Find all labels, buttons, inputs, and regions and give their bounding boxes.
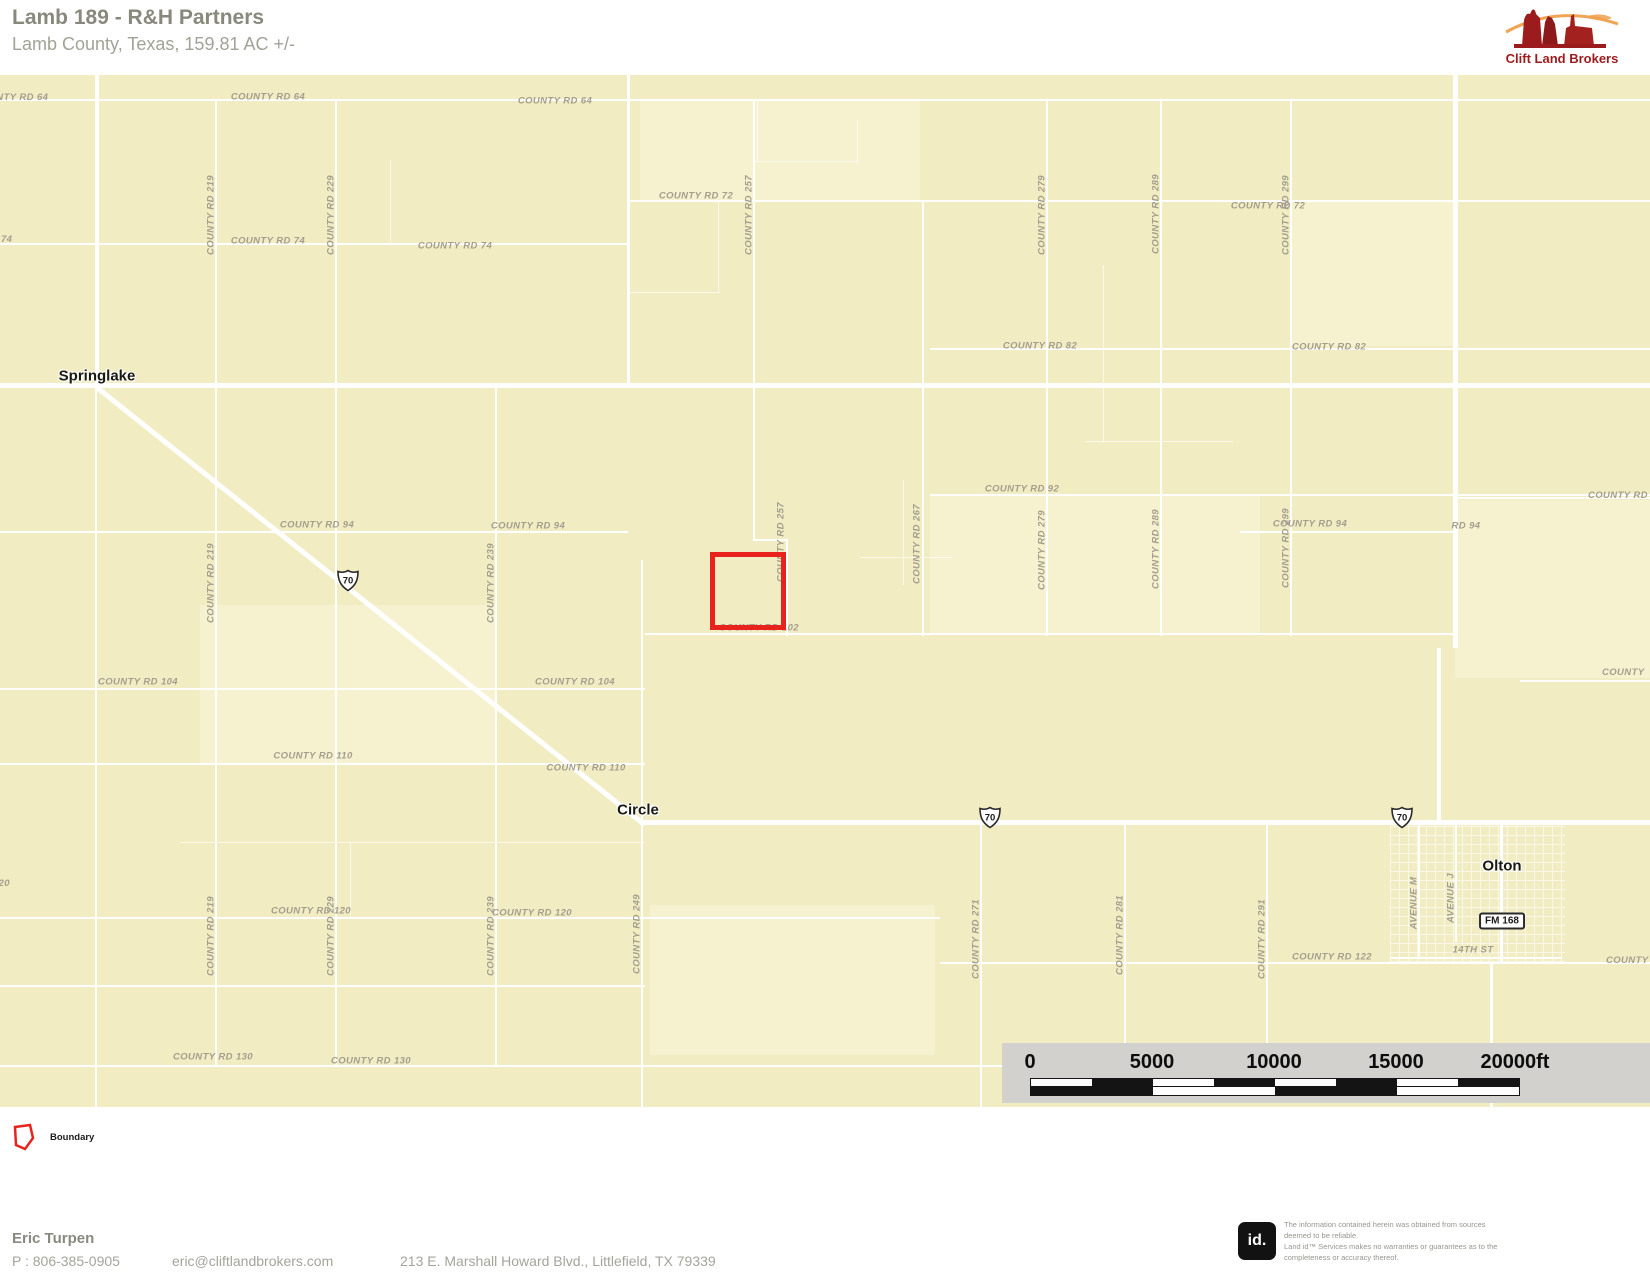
page-title: Lamb 189 - R&H Partners [12, 6, 264, 30]
road-label: COUNTY RD 72 [659, 191, 733, 202]
road-label: COUNTY RD 74 [0, 234, 12, 245]
terrain-patch [1290, 200, 1455, 346]
road-label: COUNTY RD 120 [0, 878, 10, 889]
minor-road-line [757, 99, 758, 161]
road-line [628, 200, 1650, 202]
scale-bar-segment [1153, 1087, 1275, 1095]
road-label: COUNTY RD 82 [1003, 341, 1077, 352]
agent-name: Eric Turpen [12, 1230, 94, 1247]
disclaimer-line: completeness or accuracy thereof. [1284, 1253, 1564, 1264]
road-label: COUNTY RD 279 [1037, 510, 1048, 590]
us-70-route-shield: 70 [1390, 806, 1414, 835]
town-label: Circle [617, 802, 659, 819]
minor-road-line [1103, 265, 1104, 443]
road-label: COUNTY RD 257 [744, 175, 755, 255]
terrain-patch [930, 495, 1260, 633]
road-label: COUNTY RD 130 [173, 1052, 253, 1063]
road-label: COUNTY RD 120 [271, 906, 351, 917]
land-id-logo: id. [1238, 1222, 1276, 1260]
road-line [95, 385, 97, 1107]
fm-168-route-shield: FM 168 [1479, 913, 1525, 930]
minor-road-line [390, 160, 391, 245]
road-label: COUNTY RD 249 [632, 894, 643, 974]
road-label: COUNTY RD 110 [546, 763, 625, 774]
brand-logo: Clift Land Brokers [1492, 2, 1632, 66]
road-line [1520, 680, 1650, 682]
road-label: COUNTY RD 267 [912, 504, 923, 584]
disclaimer-line: Land id™ Services makes no warranties or… [1284, 1242, 1564, 1253]
disclaimer-line: deemed to be reliable. [1284, 1231, 1564, 1242]
scale-bar-ruler [1030, 1086, 1520, 1096]
minor-road-line [755, 161, 857, 162]
road-label: COUNTY RD 74 [418, 241, 492, 252]
road-label: COUNTY RD 219 [206, 896, 217, 976]
road-label: COUNTY RD 229 [326, 896, 337, 976]
road-label: COUNTY RD 94 [280, 520, 354, 531]
legend-label: Boundary [50, 1132, 94, 1143]
road-line [95, 75, 99, 385]
svg-text:70: 70 [1397, 813, 1408, 824]
road-label: 14TH ST [1453, 945, 1494, 956]
map-canvas: COUNTY RD 64COUNTY RD 64COUNTY RD 64COUN… [0, 75, 1650, 1107]
us-70-route-shield: 70 [336, 569, 360, 598]
road-label: RD 94 [1452, 521, 1481, 532]
road-label: COUNTY RD 219 [206, 175, 217, 255]
road-label: COUNTY RD 64 [518, 96, 592, 107]
road-label: COUNTY RD 239 [486, 543, 497, 623]
road-label: COUNTY RD 104 [98, 677, 178, 688]
road-line [640, 820, 1650, 825]
road-label: COUNTY RD 122 [1292, 952, 1372, 963]
road-label: COUNTY RD 94 [491, 521, 565, 532]
minor-road-line [857, 120, 858, 165]
terrain-patch [200, 605, 495, 763]
property-boundary [710, 552, 786, 630]
road-label: COUNTY RD 130 [331, 1056, 411, 1067]
road-line [0, 1065, 1005, 1067]
minor-road-line [1085, 441, 1233, 442]
terrain-patch [640, 100, 920, 200]
boundary-legend-icon [10, 1122, 36, 1152]
road-label: COUNTY RD 82 [1292, 342, 1366, 353]
scale-bar-segment [1275, 1087, 1397, 1095]
road-line [753, 99, 755, 540]
road-label: COUNTY RD 239 [486, 896, 497, 976]
road-label: COUNTY RD 289 [1151, 174, 1162, 254]
scale-bar-segment [1031, 1087, 1153, 1095]
road-label: COUNTY [1606, 955, 1649, 966]
terrain-patch [1455, 500, 1650, 678]
road-label: COUNTY [1602, 667, 1645, 678]
scale-bar-label: 10000 [1246, 1051, 1302, 1074]
road-label: COUNTY RD 64 [0, 92, 48, 103]
brand-logo-text: Clift Land Brokers [1492, 51, 1632, 66]
road-label: COUNTY RD 104 [535, 677, 615, 688]
road-label: COUNTY RD 72 [1231, 201, 1305, 212]
road-label: AVENUE J [1446, 873, 1457, 923]
agent-phone: P : 806-385-0905 [12, 1253, 120, 1269]
road-label: COUNTY RD 74 [231, 236, 305, 247]
disclaimer-line: The information contained herein was obt… [1284, 1220, 1564, 1231]
road-line [1453, 75, 1458, 648]
road-line [1437, 648, 1441, 822]
road-label: COUNTY RD [1588, 490, 1648, 501]
road-label: COUNTY RD 299 [1281, 508, 1292, 588]
road-label: COUNTY RD 64 [231, 92, 305, 103]
town-label: Olton [1482, 858, 1521, 875]
road-label: COUNTY RD 299 [1281, 175, 1292, 255]
road-label: COUNTY RD 92 [985, 484, 1059, 495]
town-label: Springlake [59, 368, 136, 385]
minor-road-line [718, 200, 719, 292]
road-label: AVENUE M [1409, 877, 1420, 930]
minor-road-line [903, 480, 904, 585]
agent-address: 213 E. Marshall Howard Blvd., Littlefiel… [400, 1253, 716, 1269]
disclaimer-text: The information contained herein was obt… [1284, 1220, 1564, 1264]
minor-road-line [180, 842, 645, 843]
scale-bar: 05000100001500020000ft [1002, 1043, 1650, 1103]
header: Lamb 189 - R&H Partners Lamb County, Tex… [0, 0, 1650, 75]
svg-text:70: 70 [343, 576, 354, 587]
road-line [0, 383, 1650, 388]
scale-bar-label: 5000 [1130, 1051, 1175, 1074]
road-label: COUNTY RD 219 [206, 543, 217, 623]
us-70-route-shield: 70 [978, 806, 1002, 835]
road-label: COUNTY RD 229 [326, 175, 337, 255]
road-label: COUNTY RD 279 [1037, 175, 1048, 255]
page: Lamb 189 - R&H Partners Lamb County, Tex… [0, 0, 1650, 1284]
road-line [627, 75, 630, 383]
minor-road-line [628, 292, 720, 293]
road-line [0, 917, 940, 919]
scale-bar-label: 15000 [1368, 1051, 1424, 1074]
road-line [641, 560, 643, 1107]
brand-logo-icon [1492, 2, 1632, 52]
road-label: COUNTY RD 271 [971, 899, 982, 979]
road-label: COUNTY RD 120 [492, 908, 572, 919]
agent-email: eric@cliftlandbrokers.com [172, 1253, 333, 1269]
road-label: COUNTY RD 289 [1151, 509, 1162, 589]
legend: Boundary [10, 1122, 94, 1152]
page-subtitle: Lamb County, Texas, 159.81 AC +/- [12, 34, 295, 55]
road-label: COUNTY RD 291 [1257, 899, 1268, 979]
terrain-patch [650, 905, 935, 1055]
scale-bar-segment [1397, 1087, 1519, 1095]
road-line [1240, 531, 1453, 533]
scale-bar-label: 20000ft [1481, 1051, 1550, 1074]
road-label: COUNTY RD 281 [1115, 895, 1126, 975]
minor-road-line [860, 557, 952, 558]
svg-text:70: 70 [985, 813, 996, 824]
scale-bar-label: 0 [1024, 1051, 1035, 1074]
road-label: COUNTY RD 110 [273, 751, 352, 762]
